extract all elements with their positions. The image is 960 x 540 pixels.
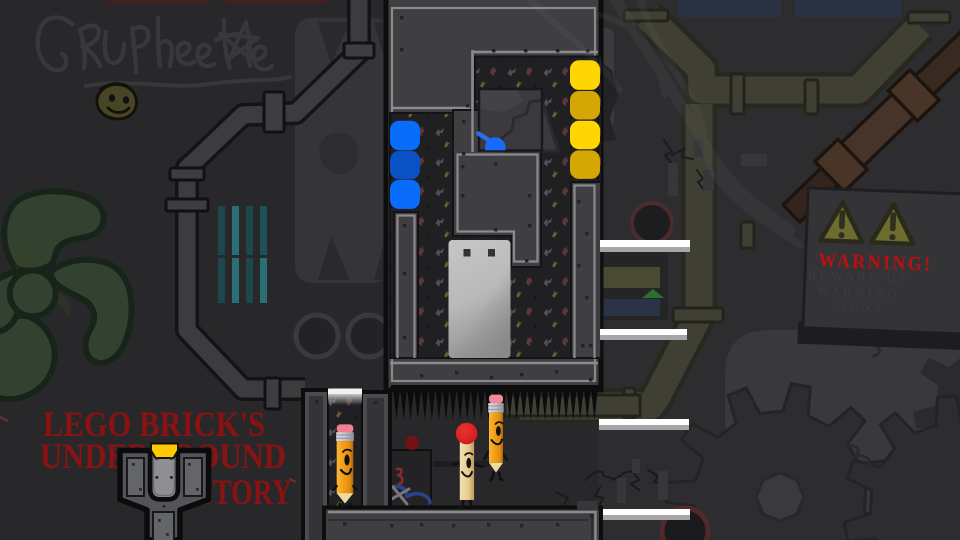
svg-text:SIGNS: SIGNS bbox=[831, 299, 884, 315]
